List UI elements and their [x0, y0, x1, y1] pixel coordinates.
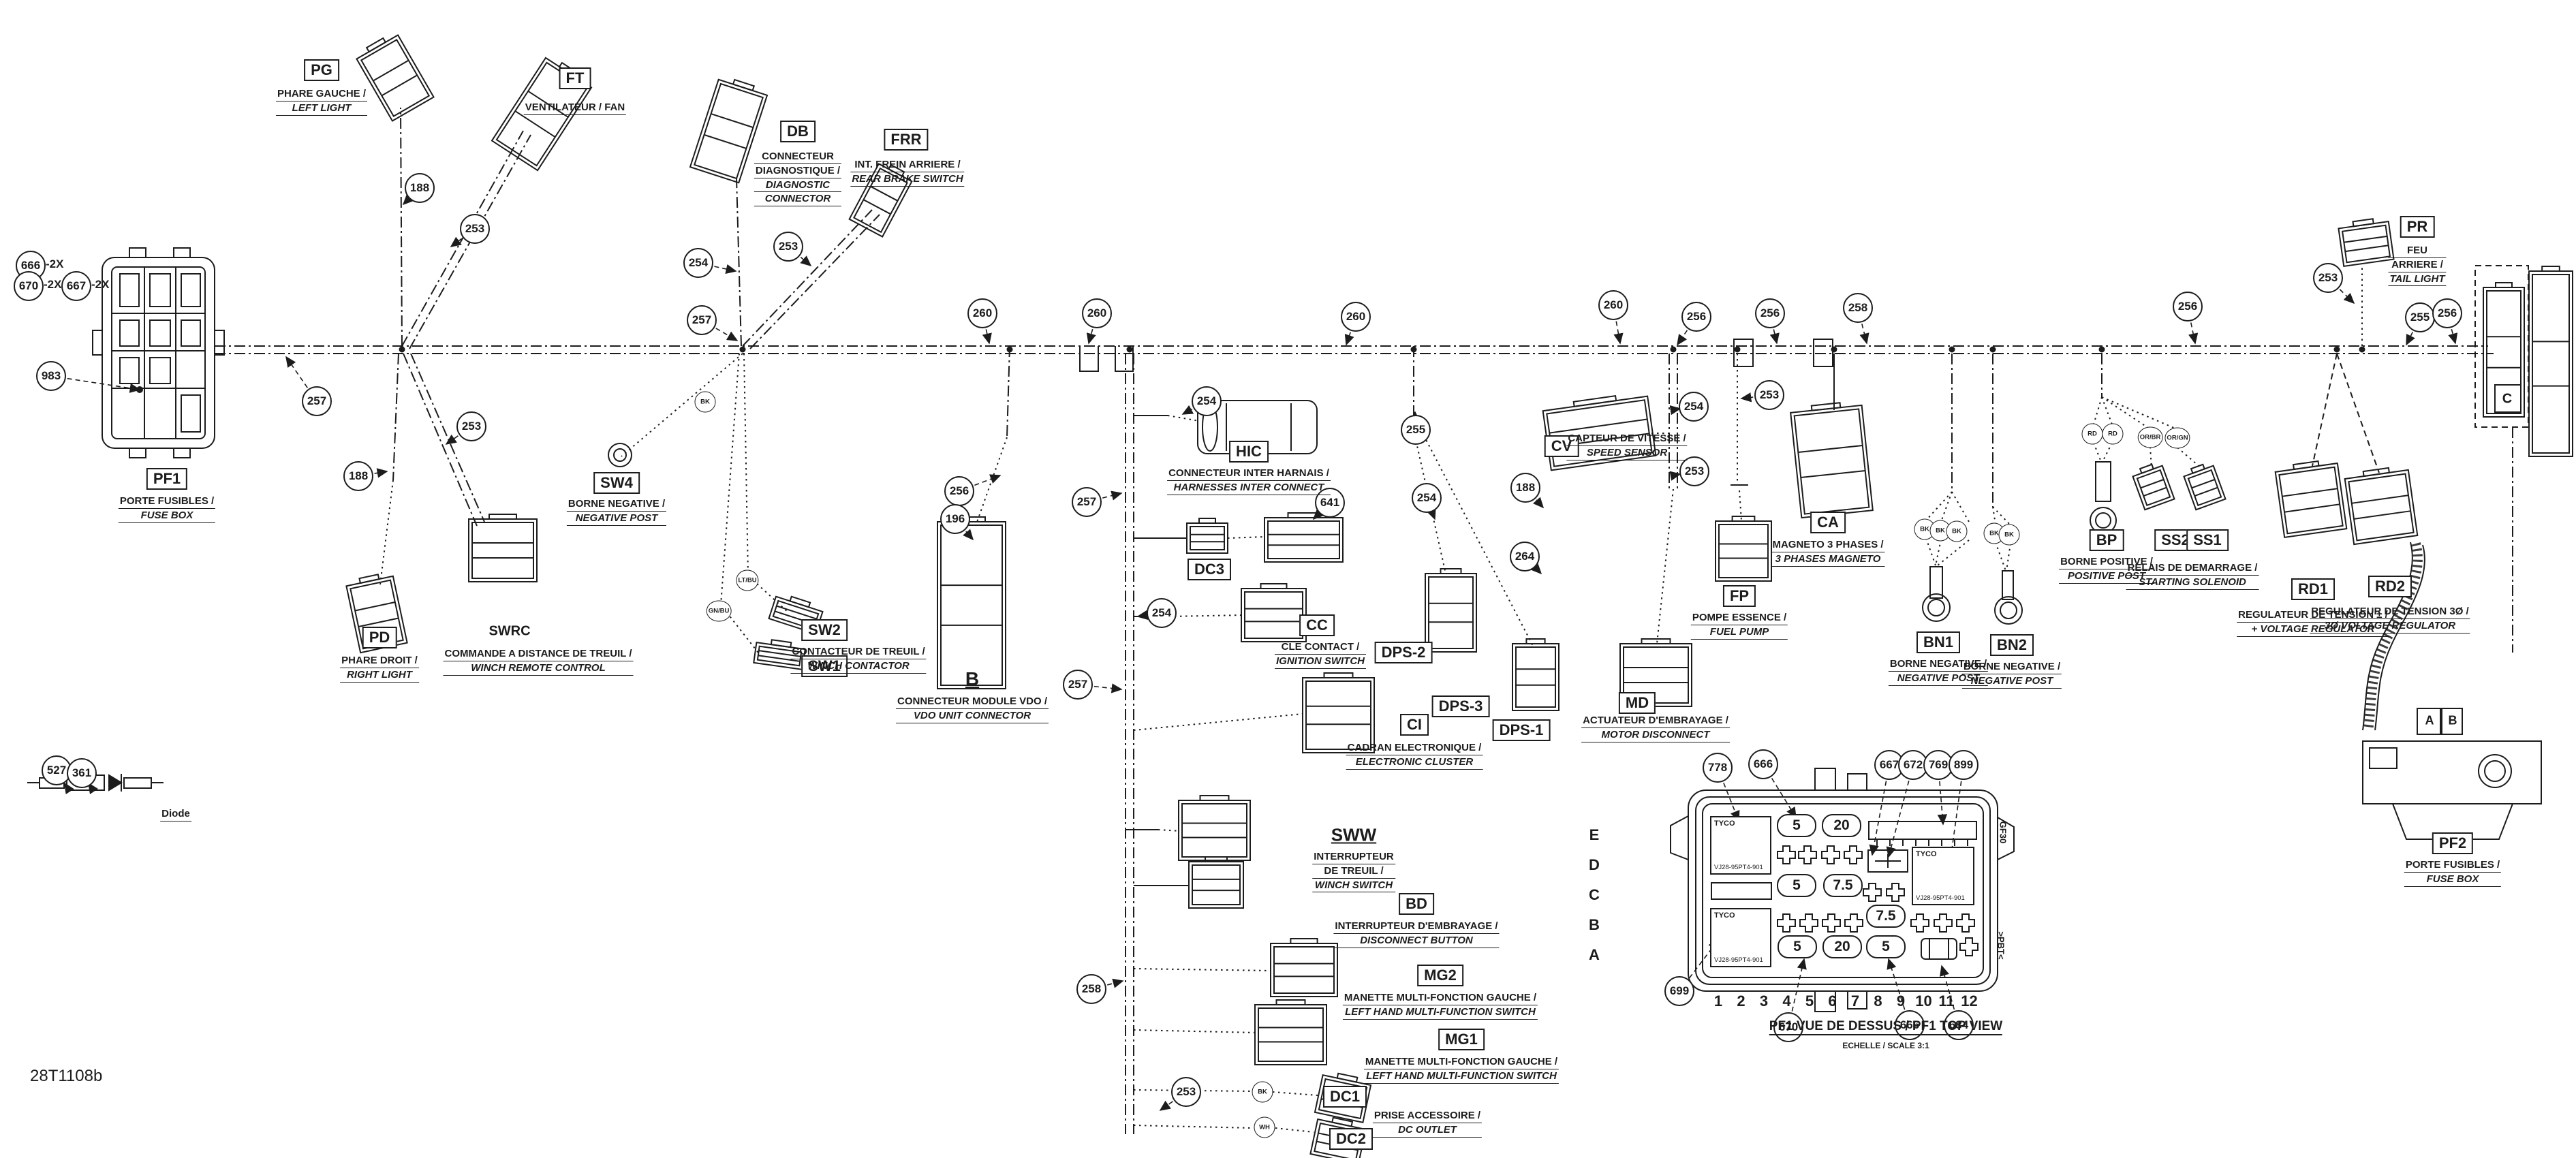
connector-code-MG2: MG2: [1417, 965, 1463, 986]
callout-leader-lines: [65, 200, 2455, 1110]
component-caption: RELAIS DE DEMARRAGE /STARTING SOLENOID: [2126, 561, 2259, 590]
callout-253: 253: [1679, 456, 1709, 486]
connector-code-DC3: DC3: [1188, 559, 1231, 580]
component-caption: FEUARRIERE /TAIL LIGHT: [2388, 244, 2446, 286]
caption-line: CONNECTEUR INTER HARNAIS /: [1167, 467, 1331, 481]
wire-color-tag-BK: BK: [695, 392, 716, 413]
fusebox-column-5: 5: [1805, 992, 1814, 1010]
callout-257: 257: [687, 305, 717, 335]
caption-line: MANETTE MULTI-FONCTION GAUCHE /: [1364, 1055, 1559, 1069]
caption-line: INTERRUPTEUR D'EMBRAYAGE /: [1333, 920, 1499, 934]
caption-line: STARTING SOLENOID: [2126, 576, 2259, 590]
component-caption: CADRAN ELECTRONIQUE /ELECTRONIC CLUSTER: [1346, 741, 1483, 770]
component-caption: PORTE FUSIBLES /FUSE BOX: [119, 495, 215, 523]
callout-699: 699: [1664, 976, 1694, 1006]
caption-line: NEGATIVE POST: [1962, 674, 2062, 689]
wire-color-tag-GN-BU: GN/BU: [707, 601, 732, 622]
wire-color-tag-WH: WH: [1254, 1117, 1275, 1138]
callout-255: 255: [1401, 415, 1431, 445]
wire-color-tag-BK: BK: [1946, 521, 1968, 542]
caption-line: FUSE BOX: [119, 509, 215, 523]
fusebox-column-9: 9: [1897, 992, 1905, 1010]
callout-196: 196: [940, 504, 970, 534]
connector-code-CI: CI: [1400, 714, 1429, 736]
caption-line: SPEED SENSOR: [1566, 446, 1687, 460]
callout-254: 254: [683, 248, 713, 278]
caption-line: CAPTEUR DE VITESSE /: [1566, 432, 1687, 446]
fusebox-column-6: 6: [1828, 992, 1836, 1010]
component-caption: CONNECTEUR MODULE VDO /VDO UNIT CONNECTO…: [896, 695, 1049, 723]
callout-361: 361: [67, 758, 97, 788]
component-caption: BORNE NEGATIVE /NEGATIVE POST: [567, 497, 666, 526]
text-SWW: SWW: [1331, 825, 1376, 846]
caption-line: LEFT HAND MULTI-FUNCTION SWITCH: [1343, 1005, 1538, 1020]
caption-line: MOTOR DISCONNECT: [1581, 728, 1730, 742]
relay-TYCO: TYCOVJ28-95PT4-901: [1710, 816, 1771, 875]
connector-code-PF2: PF2: [2432, 832, 2473, 854]
component-caption: BORNE NEGATIVE /NEGATIVE POST: [1962, 660, 2062, 689]
component-caption: PORTE FUSIBLES /FUSE BOX: [2404, 858, 2501, 887]
caption-line: ARRIERE /: [2388, 258, 2446, 272]
connector-code-FP: FP: [1723, 585, 1756, 607]
component-caption: PHARE DROIT /RIGHT LIGHT: [340, 654, 419, 683]
main-harness-line: [215, 108, 2513, 1134]
connector-code-RD2: RD2: [2368, 576, 2412, 597]
relay-part-number: VJ28-95PT4-901: [1916, 894, 1965, 902]
callout-257: 257: [1063, 670, 1093, 700]
caption-line: CONNECTEUR MODULE VDO /: [896, 695, 1049, 709]
relay-TYCO: TYCOVJ28-95PT4-901: [1710, 908, 1771, 967]
fusebox-column-4: 4: [1782, 992, 1790, 1010]
fusebox-scale-note: ECHELLE / SCALE 3:1: [1842, 1041, 1929, 1050]
wire-color-tag-OR-GN: OR/GN: [2164, 428, 2190, 449]
caption-line: PHARE DROIT /: [340, 654, 419, 668]
caption-line: VDO UNIT CONNECTOR: [896, 709, 1049, 723]
callout-258: 258: [1843, 293, 1873, 323]
caption-line: IGNITION SWITCH: [1275, 655, 1366, 669]
caption-line: HARNESSES INTER CONNECT: [1167, 481, 1331, 495]
caption-line: REGULATEUR DE TENSION 3Ø /: [2310, 605, 2470, 619]
component-caption: INTERRUPTEUR D'EMBRAYAGE /DISCONNECT BUT…: [1333, 920, 1499, 948]
callout-256: 256: [944, 476, 974, 506]
caption-line: PORTE FUSIBLES /: [119, 495, 215, 509]
fuse-5A: 5: [1778, 935, 1817, 958]
component-caption: CAPTEUR DE VITESSE /SPEED SENSOR: [1566, 432, 1687, 460]
fusebox-column-11: 11: [1938, 992, 1954, 1010]
connector-code-PG: PG: [304, 59, 339, 81]
component-caption: Diode: [160, 807, 191, 821]
text-C: C: [2502, 392, 2512, 407]
caption-line: PHARE GAUCHE /: [276, 87, 367, 101]
callout-257: 257: [1072, 487, 1102, 517]
connector-code-SW2: SW2: [801, 619, 848, 641]
caption-line: INTERRUPTEUR: [1312, 850, 1395, 864]
connector-code-BP: BP: [2090, 529, 2124, 551]
wire-color-tag-BK: BK: [1252, 1082, 1273, 1103]
connector-code-MG1: MG1: [1438, 1029, 1485, 1050]
text-A: A: [1589, 946, 1600, 964]
fusebox-column-12: 12: [1961, 992, 1977, 1010]
callout-899: 899: [1949, 750, 1978, 780]
callout-256: 256: [1681, 302, 1711, 332]
relay-TYCO: TYCOVJ28-95PT4-901: [1912, 847, 1974, 905]
callout-253: 253: [1754, 380, 1784, 410]
callout-254: 254: [1192, 386, 1222, 416]
component-caption: COMMANDE A DISTANCE DE TREUIL /WINCH REM…: [443, 647, 633, 676]
connector-code-DPS-3: DPS-3: [1432, 695, 1490, 717]
connector-code-PR: PR: [2400, 216, 2435, 238]
callout-quantity: -2X: [46, 257, 63, 271]
callout-253: 253: [2313, 263, 2343, 293]
fuse-20A: 20: [1822, 814, 1861, 837]
caption-line: DIAGNOSTIC: [754, 178, 841, 193]
connector-code-PD: PD: [362, 627, 397, 648]
connector-code-CC: CC: [1299, 614, 1335, 636]
caption-line: CONNECTOR: [754, 192, 841, 206]
fusebox-column-1: 1: [1714, 992, 1722, 1010]
caption-line: NEGATIVE POST: [567, 512, 666, 526]
caption-line: FUEL PUMP: [1691, 625, 1788, 640]
caption-line: MAGNETO 3 PHASES /: [1771, 538, 1884, 552]
connector-code-BN2: BN2: [1990, 634, 2034, 656]
caption-line: VENTILATEUR / FAN: [524, 101, 626, 115]
branch-wires-dashed: [2312, 266, 2528, 473]
component-caption: PRISE ACCESSOIRE /DC OUTLET: [1373, 1109, 1482, 1138]
callout-255: 255: [2405, 302, 2435, 332]
caption-line: INT. FREIN ARRIERE /: [850, 158, 964, 172]
caption-line: BORNE NEGATIVE /: [1962, 660, 2062, 674]
connector-code-DPS-2: DPS-2: [1375, 642, 1433, 663]
fusebox-title: PF1 VUE DE DESSUS / PF1 TOP VIEW: [1769, 1019, 2002, 1035]
caption-line: FEU: [2388, 244, 2446, 258]
caption-line: DISCONNECT BUTTON: [1333, 934, 1499, 948]
callout-260: 260: [1341, 302, 1371, 332]
connector-code-SS1: SS1: [2186, 529, 2229, 551]
component-caption: PHARE GAUCHE /LEFT LIGHT: [276, 87, 367, 116]
text-E: E: [1589, 826, 1600, 844]
component-caption: MANETTE MULTI-FONCTION GAUCHE /LEFT HAND…: [1364, 1055, 1559, 1084]
callout-254: 254: [1147, 598, 1177, 628]
connector-code-RD1: RD1: [2291, 578, 2335, 600]
connector-code-HIC: HIC: [1229, 441, 1269, 463]
caption-line: POMPE ESSENCE /: [1691, 611, 1788, 625]
caption-line: LEFT LIGHT: [276, 101, 367, 116]
caption-line: LEFT HAND MULTI-FUNCTION SWITCH: [1364, 1069, 1559, 1084]
caption-line: FUSE BOX: [2404, 873, 2501, 887]
caption-line: ACTUATEUR D'EMBRAYAGE /: [1581, 714, 1730, 728]
connector-code-SW4: SW4: [593, 472, 640, 494]
drawing-number: 28T1108b: [30, 1067, 102, 1086]
component-caption: CONTACTEUR DE TREUIL /WINCH CONTACTOR: [790, 645, 926, 674]
component-caption: VENTILATEUR / FAN: [524, 101, 626, 115]
wire-color-tag-RD: RD: [2102, 424, 2124, 445]
callout-666: 666: [1748, 749, 1778, 779]
fuse-7.5A: 7.5: [1823, 874, 1863, 897]
connector-code-BD: BD: [1399, 893, 1434, 915]
caption-line: WINCH SWITCH: [1312, 879, 1395, 893]
fusebox-column-7: 7: [1851, 992, 1859, 1010]
connector-code-DPS-1: DPS-1: [1493, 719, 1551, 741]
callout-257: 257: [302, 386, 332, 416]
fusebox-column-2: 2: [1737, 992, 1745, 1010]
wiring-harness-diagram: 28T1108b 666-2X670-2X667-2X9835273611882…: [0, 0, 2576, 1158]
caption-line: 3Ø VOLTAGE REGULATOR: [2310, 619, 2470, 633]
callout-778: 778: [1703, 753, 1733, 783]
caption-line: BORNE NEGATIVE /: [567, 497, 666, 512]
connector-code-BN1: BN1: [1917, 631, 1960, 653]
fusebox-title-text: PF1 VUE DE DESSUS / PF1 TOP VIEW: [1769, 1019, 2002, 1035]
callout-667: 667-2X: [61, 271, 91, 301]
fusebox-column-3: 3: [1760, 992, 1768, 1010]
fusebox-column-8: 8: [1874, 992, 1882, 1010]
component-caption: ACTUATEUR D'EMBRAYAGE /MOTOR DISCONNECT: [1581, 714, 1730, 742]
caption-line: RELAIS DE DEMARRAGE /: [2126, 561, 2259, 576]
callout-188: 188: [405, 173, 435, 203]
caption-line: RIGHT LIGHT: [340, 668, 419, 683]
caption-line: 3 PHASES MAGNETO: [1771, 552, 1884, 567]
text-B: B: [2449, 714, 2457, 728]
fuse-5A: 5: [1866, 935, 1906, 958]
connector-code-FT: FT: [559, 67, 591, 89]
caption-line: PORTE FUSIBLES /: [2404, 858, 2501, 873]
text-PBT: >PBT<: [1996, 931, 2006, 959]
caption-line: CONTACTEUR DE TREUIL /: [790, 645, 926, 659]
callout-256: 256: [2432, 298, 2462, 328]
fuse-20A: 20: [1822, 935, 1862, 958]
caption-line: ELECTRONIC CLUSTER: [1346, 755, 1483, 770]
text-B: B: [965, 668, 979, 690]
callout-260: 260: [967, 298, 997, 328]
callout-256: 256: [1755, 298, 1785, 328]
callout-quantity: -2X: [91, 278, 109, 292]
callout-256: 256: [2173, 292, 2203, 322]
callout-188: 188: [343, 461, 373, 491]
caption-line: TAIL LIGHT: [2388, 272, 2446, 287]
component-caption: INT. FREIN ARRIERE /REAR BRAKE SWITCH: [850, 158, 964, 187]
wire-color-tag-RD: RD: [2082, 424, 2103, 445]
text-C: C: [1589, 886, 1600, 904]
relay-part-number: VJ28-95PT4-901: [1714, 956, 1763, 964]
wire-color-tag-OR-BR: OR/BR: [2138, 427, 2163, 448]
callout-260: 260: [1598, 290, 1628, 320]
fuse-5A: 5: [1777, 874, 1816, 897]
caption-line: DIAGNOSTIQUE /: [754, 164, 841, 178]
callout-254: 254: [1679, 392, 1709, 422]
connector-code-PF1: PF1: [146, 468, 187, 490]
caption-line: DC OUTLET: [1373, 1123, 1482, 1138]
callout-253: 253: [773, 232, 803, 262]
caption-line: WINCH CONTACTOR: [790, 659, 926, 674]
component-caption: REGULATEUR DE TENSION 3Ø /3Ø VOLTAGE REG…: [2310, 605, 2470, 633]
callout-260: 260: [1082, 298, 1112, 328]
caption-line: MANETTE MULTI-FONCTION GAUCHE /: [1343, 991, 1538, 1005]
connector-glyphs: [345, 31, 2573, 1158]
component-caption: CLE CONTACT /IGNITION SWITCH: [1275, 640, 1366, 669]
component-caption: POMPE ESSENCE /FUEL PUMP: [1691, 611, 1788, 640]
connector-code-MD: MD: [1619, 692, 1656, 714]
caption-line: PRISE ACCESSOIRE /: [1373, 1109, 1482, 1123]
callout-quantity: -2X: [44, 278, 61, 292]
connector-code-FRR: FRR: [884, 129, 928, 151]
text-A: A: [2425, 714, 2434, 728]
caption-line: COMMANDE A DISTANCE DE TREUIL /: [443, 647, 633, 661]
text-B: B: [1589, 916, 1600, 934]
wire-color-tag-LT-BU: LT/BU: [736, 570, 758, 591]
relay-part-number: VJ28-95PT4-901: [1714, 864, 1763, 871]
callout-983: 983: [36, 361, 66, 391]
fusebox-column-10: 10: [1915, 992, 1931, 1010]
fuse-7.5A: 7.5: [1866, 905, 1906, 928]
component-caption: CONNECTEURDIAGNOSTIQUE /DIAGNOSTICCONNEC…: [754, 150, 841, 206]
text-D: D: [1589, 856, 1600, 874]
caption-line: CLE CONTACT /: [1275, 640, 1366, 655]
caption-line: Diode: [160, 807, 191, 821]
callout-670: 670-2X: [14, 271, 44, 301]
connector-code-DC2: DC2: [1329, 1128, 1373, 1150]
callout-264: 264: [1510, 542, 1540, 572]
component-caption: CONNECTEUR INTER HARNAIS /HARNESSES INTE…: [1167, 467, 1331, 495]
caption-line: DE TREUIL /: [1312, 864, 1395, 879]
callout-188: 188: [1510, 473, 1540, 503]
caption-line: WINCH REMOTE CONTROL: [443, 661, 633, 676]
component-caption: INTERRUPTEURDE TREUIL /WINCH SWITCH: [1312, 850, 1395, 892]
callout-254: 254: [1412, 483, 1442, 513]
caption-line: REAR BRAKE SWITCH: [850, 172, 964, 187]
component-caption: MANETTE MULTI-FONCTION GAUCHE /LEFT HAND…: [1343, 991, 1538, 1020]
callout-258: 258: [1076, 974, 1106, 1004]
component-caption: MAGNETO 3 PHASES /3 PHASES MAGNETO: [1771, 538, 1884, 567]
text-SWRC: SWRC: [488, 624, 530, 640]
callout-253: 253: [1171, 1077, 1201, 1107]
caption-line: CADRAN ELECTRONIQUE /: [1346, 741, 1483, 755]
callout-253: 253: [456, 411, 486, 441]
wire-color-tag-BK: BK: [1999, 525, 2020, 546]
caption-line: CONNECTEUR: [754, 150, 841, 164]
connector-code-DC1: DC1: [1323, 1086, 1367, 1108]
connector-code-CA: CA: [1810, 512, 1846, 533]
connector-code-DB: DB: [780, 121, 816, 142]
callout-253: 253: [460, 214, 490, 244]
fuse-5A: 5: [1777, 814, 1816, 837]
text-GF30: GF30: [1998, 821, 2008, 844]
